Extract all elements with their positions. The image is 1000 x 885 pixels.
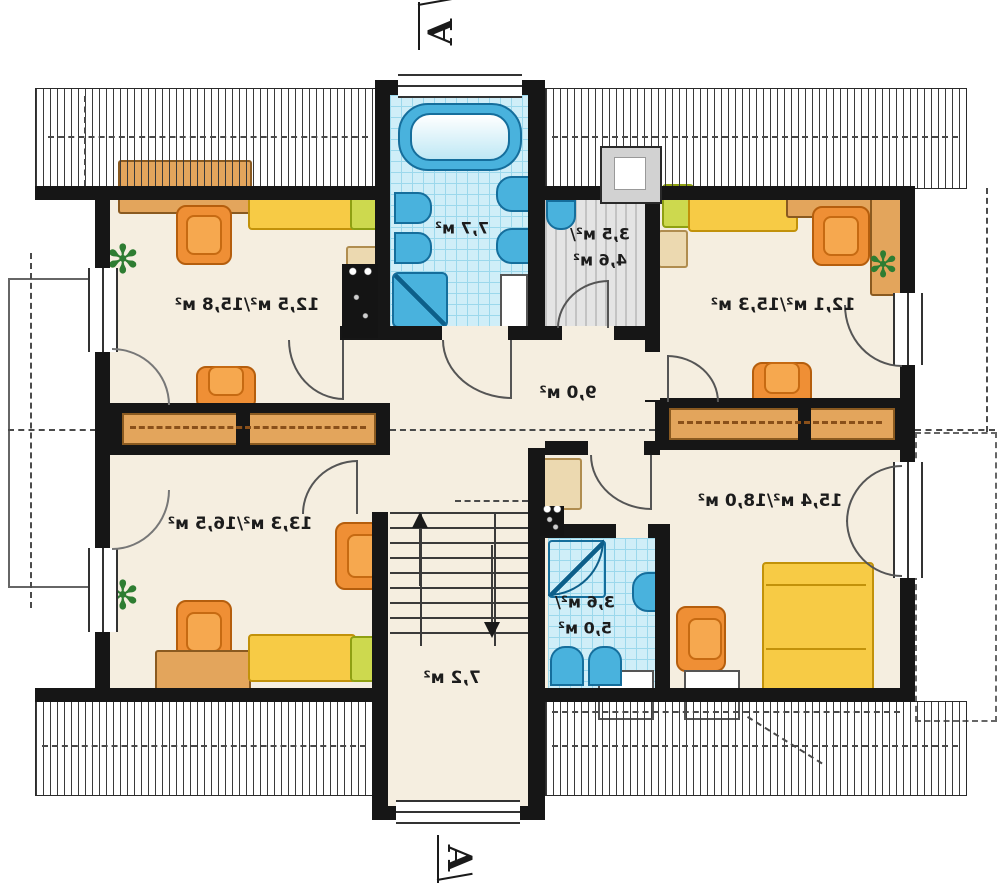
- wall: [35, 688, 372, 702]
- knee-wall-dashed-line: [552, 711, 900, 713]
- section-line-bottom-flag: [437, 873, 473, 881]
- section-line-top-flag: [418, 0, 454, 6]
- room-area-label: 7,7 м²: [435, 219, 489, 238]
- stairs-arrow-stem: [491, 545, 493, 625]
- section-line-top: [418, 2, 420, 50]
- wardrobe-rod-dashed: [678, 421, 882, 424]
- wall: [900, 186, 915, 700]
- nightstand: [658, 230, 688, 268]
- window: [88, 548, 118, 632]
- shower: [392, 272, 448, 328]
- room-area-label: 7,2 м²: [423, 668, 480, 688]
- stairs-up-arrow: [412, 512, 428, 528]
- room-area-label: 9,0 м²: [539, 383, 596, 403]
- door-opening: [588, 441, 644, 455]
- toilet: [496, 176, 532, 212]
- wall: [655, 524, 670, 688]
- room-area-label: 13,3 м²/16,5 м²: [168, 514, 313, 534]
- bathtub-basin: [410, 113, 510, 161]
- wardrobe-interior: [669, 408, 895, 440]
- toilet: [550, 646, 584, 686]
- eave-dashed-line: [42, 745, 366, 747]
- roof-overhang-top-left: [35, 88, 377, 189]
- wall: [528, 448, 545, 820]
- room-area-label: 3,5 м²/: [570, 225, 630, 244]
- wall: [528, 80, 545, 340]
- office-chair-seat: [186, 215, 222, 255]
- door-opening: [645, 352, 660, 400]
- double-bed-footboard: [766, 648, 866, 650]
- plant: ✻: [868, 248, 898, 284]
- eave-dashed-line: [84, 96, 86, 186]
- stairs-arrow-stem: [419, 526, 421, 586]
- door-opening: [442, 326, 508, 340]
- room-area-label: 5,0 м²: [558, 619, 612, 638]
- roof-overhang-bottom-right: [545, 701, 967, 796]
- window: [398, 74, 522, 98]
- stairwell-floor: [388, 688, 528, 806]
- balcony-right: [915, 432, 997, 722]
- window: [396, 800, 520, 824]
- balcony-left-dashed: [30, 253, 32, 608]
- washbasin: [394, 192, 432, 224]
- double-bed: [762, 562, 874, 698]
- room-area-label: 12,5 м²/15,8 м²: [175, 295, 320, 315]
- stairs: [390, 512, 528, 646]
- chimney-duct: [614, 157, 646, 190]
- flue: [540, 506, 564, 536]
- office-chair-seat: [186, 612, 222, 652]
- wall: [545, 688, 915, 702]
- room-area-label: 3,6 м²/: [555, 593, 615, 612]
- door-opening: [616, 524, 648, 538]
- wardrobe-divider: [236, 403, 250, 455]
- wall: [35, 186, 375, 200]
- section-marker-bottom: A: [439, 845, 479, 871]
- balcony-left: [8, 278, 100, 588]
- wardrobe-divider: [798, 398, 811, 450]
- center-dashed-line: [8, 429, 96, 431]
- bidet: [496, 228, 532, 264]
- bidet: [588, 646, 622, 686]
- door-opening: [562, 326, 614, 340]
- armchair-seat: [688, 618, 722, 660]
- eave-dashed-line: [552, 136, 958, 138]
- eave-dashed-line: [552, 745, 958, 747]
- center-dashed-line: [390, 429, 655, 431]
- stairs-down-arrow: [484, 622, 500, 638]
- bed: [248, 634, 356, 682]
- window: [88, 268, 118, 352]
- section-marker-top: A: [421, 19, 461, 45]
- floor-plan: ✻ ✻ ✻ 12,5 м²/15,8 м² 7,7 м² 3,5 м²/ 4,: [0, 0, 1000, 885]
- room-area-label: 4,6 м²: [573, 251, 627, 270]
- center-dashed-line: [915, 429, 995, 431]
- roof-edge-dashed-right: [986, 188, 988, 432]
- eave-dashed-line: [48, 136, 368, 138]
- washbasin: [394, 232, 432, 264]
- armchair-seat: [208, 366, 244, 396]
- office-chair-seat: [823, 216, 859, 256]
- armchair-seat: [764, 362, 800, 394]
- wardrobe-rod-dashed: [130, 426, 366, 429]
- flue: [342, 264, 378, 338]
- roof-overhang-bottom-left: [35, 701, 374, 796]
- bathroom-shelf: [500, 274, 528, 328]
- room-area-label: 15,4 м²/18,0 м²: [698, 491, 843, 511]
- stairs-ceiling-dashed-line: [455, 500, 528, 502]
- wall: [372, 512, 388, 820]
- double-bed-pillow-line: [766, 584, 866, 586]
- room-area-label: 12,1 м²/15,3 м²: [711, 295, 856, 315]
